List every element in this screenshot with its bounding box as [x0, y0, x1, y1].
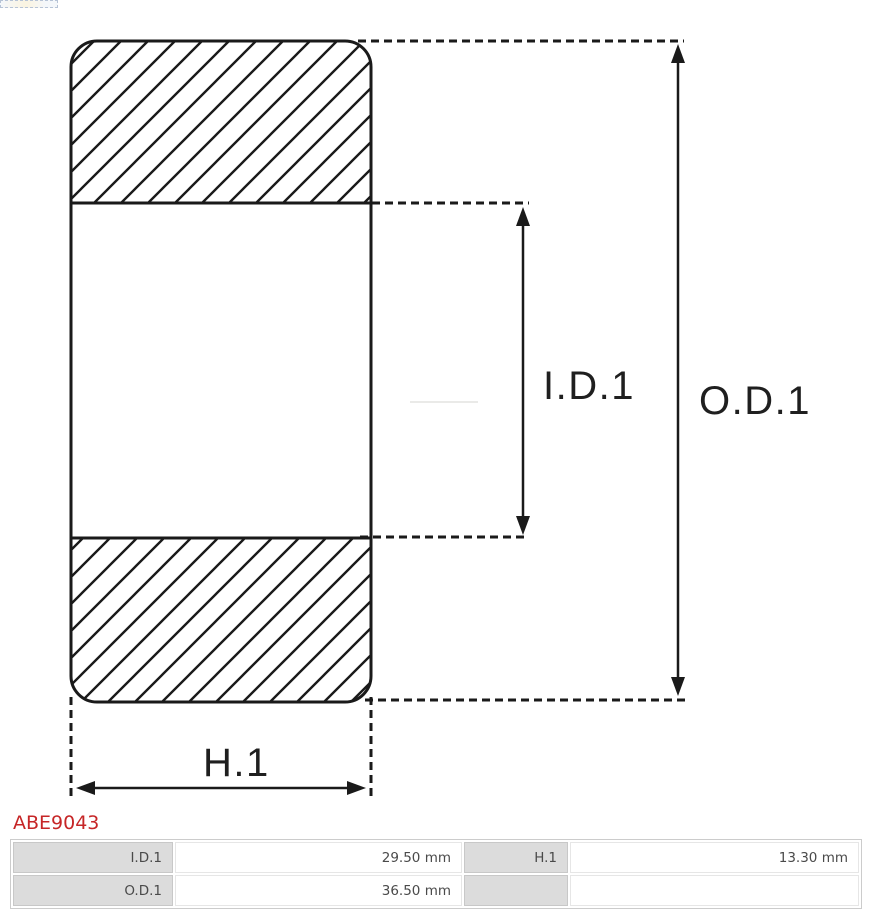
spec-label-od1: O.D.1	[13, 875, 173, 906]
spec-value-h1: 13.30 mm	[570, 842, 859, 873]
dimension-spec-table: I.D.1 29.50 mm H.1 13.30 mm O.D.1 36.50 …	[10, 839, 862, 909]
part-number: ABE9043	[13, 812, 99, 834]
spec-label-h1: H.1	[464, 842, 568, 873]
spec-label-id1: I.D.1	[13, 842, 173, 873]
spec-value-id1: 29.50 mm	[175, 842, 462, 873]
bottom-hatch-band	[71, 538, 371, 702]
od1-arrowhead-up	[671, 44, 685, 63]
od1-dimension-arrow	[671, 44, 685, 696]
spec-label-empty	[464, 875, 568, 906]
page: I.D.1 O.D.1 H.1 ABE9043 I.D.1 29.50 mm H…	[0, 0, 871, 913]
bearing-cross-section-diagram: I.D.1 O.D.1 H.1	[0, 0, 871, 810]
od1-arrowhead-down	[671, 677, 685, 696]
id1-arrowhead-down	[516, 516, 530, 535]
id1-dimension-arrow	[516, 207, 530, 535]
table-row: I.D.1 29.50 mm H.1 13.30 mm	[13, 842, 859, 873]
table-row: O.D.1 36.50 mm	[13, 875, 859, 906]
h1-arrowhead-right	[347, 781, 366, 795]
h1-arrowhead-left	[76, 781, 95, 795]
id1-label: I.D.1	[543, 364, 635, 408]
od1-label: O.D.1	[699, 379, 811, 423]
spec-value-od1: 36.50 mm	[175, 875, 462, 906]
top-hatch-band	[71, 41, 371, 203]
h1-label: H.1	[203, 741, 270, 785]
watermark-line	[410, 401, 478, 403]
spec-value-empty	[570, 875, 859, 906]
id1-arrowhead-up	[516, 207, 530, 226]
